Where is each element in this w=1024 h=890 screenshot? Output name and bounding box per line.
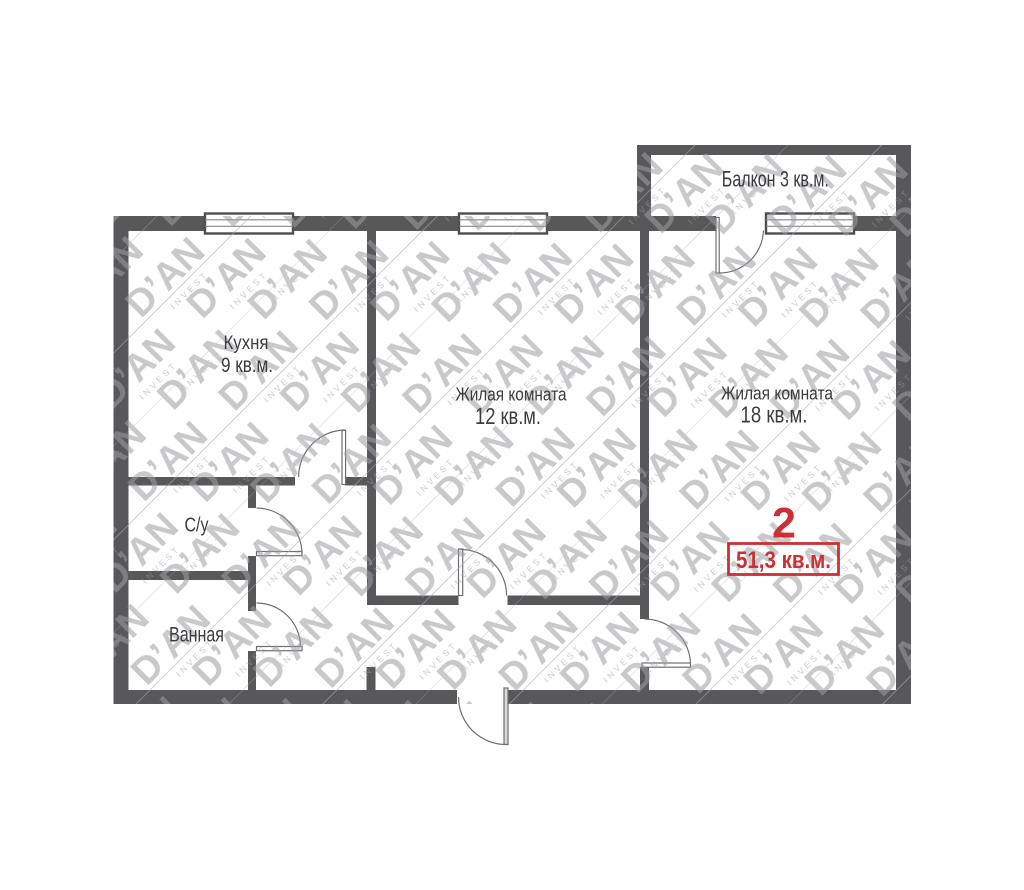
- svg-text:Ванная: Ванная: [169, 624, 224, 647]
- svg-text:18 кв.м.: 18 кв.м.: [741, 402, 808, 428]
- svg-text:51,3 кв.м.: 51,3 кв.м.: [736, 547, 831, 574]
- svg-text:С/у: С/у: [185, 515, 209, 537]
- svg-text:9 кв.м.: 9 кв.м.: [221, 354, 273, 377]
- svg-text:Жилая комната: Жилая комната: [456, 384, 568, 405]
- svg-text:12 кв.м.: 12 кв.м.: [475, 403, 541, 429]
- svg-text:2: 2: [772, 500, 796, 548]
- svg-text:Жилая комната: Жилая комната: [721, 383, 834, 404]
- svg-text:Кухня: Кухня: [224, 333, 269, 354]
- svg-text:Балкон 3 кв.м.: Балкон 3 кв.м.: [722, 166, 829, 191]
